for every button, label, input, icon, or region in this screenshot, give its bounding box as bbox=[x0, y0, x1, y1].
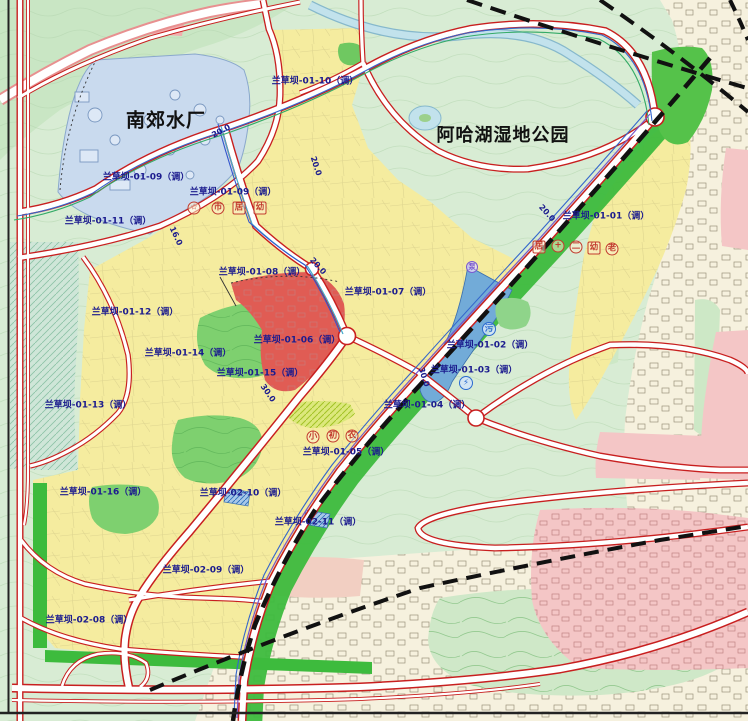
substation-icon: ⚡ bbox=[459, 376, 473, 390]
hospital-icon: + bbox=[552, 240, 565, 253]
parcel-label: 兰草坝-01-04（调） bbox=[384, 398, 471, 411]
parcel-label: 兰草坝-01-15（调） bbox=[217, 366, 304, 379]
school-no2-icon: 二 bbox=[570, 241, 583, 254]
parcel-label: 兰草坝-01-07（调） bbox=[345, 285, 432, 298]
parcel-label: 兰草坝-01-02（调） bbox=[447, 338, 534, 351]
parcel-label: 兰草坝-02-10（调） bbox=[200, 486, 287, 499]
planning-map[interactable]: 南郊水厂阿哈湖湿地公园兰草坝-01-10（调）兰草坝-01-09（调）兰草坝-0… bbox=[0, 0, 748, 721]
parcel-label: 兰草坝-01-13（调） bbox=[45, 398, 132, 411]
wetland-park-title: 阿哈湖湿地公园 bbox=[437, 121, 570, 147]
parcel-label: 兰草坝-01-09（调） bbox=[190, 185, 277, 198]
parcel-label: 兰草坝-02-09（调） bbox=[163, 563, 250, 576]
primary-school-icon: 小 bbox=[307, 431, 320, 444]
parcel-label: 兰草坝-02-11（调） bbox=[275, 515, 362, 528]
sewage-plant-icon: 污 bbox=[482, 322, 496, 336]
parcel-label: 兰草坝-01-03（调） bbox=[431, 363, 518, 376]
parcel-label: 兰草坝-01-05（调） bbox=[303, 445, 390, 458]
elderly-care-icon: 老 bbox=[606, 243, 619, 256]
parcel-label: 兰草坝-01-09（调） bbox=[103, 170, 190, 183]
parcel-label: 兰草坝-01-11（调） bbox=[65, 214, 152, 227]
parcel-label: 兰草坝-02-08（调） bbox=[46, 613, 133, 626]
community-center-icon: 居 bbox=[233, 202, 246, 215]
kindergarten-icon: 幼 bbox=[254, 202, 267, 215]
parcel-label: 兰草坝-01-08（调） bbox=[219, 265, 306, 278]
farmers-market-icon: 农 bbox=[346, 430, 359, 443]
water-plant-title: 南郊水厂 bbox=[126, 106, 206, 133]
market-icon: 市 bbox=[212, 202, 225, 215]
parcel-label: 兰草坝-01-14（调） bbox=[145, 346, 232, 359]
parcel-label: 兰草坝-01-06（调） bbox=[254, 333, 341, 346]
community-center-icon: 居 bbox=[533, 241, 546, 254]
pump-station-icon: 泵 bbox=[466, 261, 478, 273]
parcel-label: 兰草坝-01-01（调） bbox=[563, 209, 650, 222]
junior-high-icon: 初 bbox=[327, 430, 340, 443]
parcel-label: 兰草坝-01-16（调） bbox=[60, 485, 147, 498]
parcel-label: 兰草坝-01-12（调） bbox=[92, 305, 179, 318]
kindergarten-icon: 幼 bbox=[588, 242, 601, 255]
parcel-label: 兰草坝-01-10（调） bbox=[272, 74, 359, 87]
star-icon: ☆ bbox=[188, 202, 201, 215]
